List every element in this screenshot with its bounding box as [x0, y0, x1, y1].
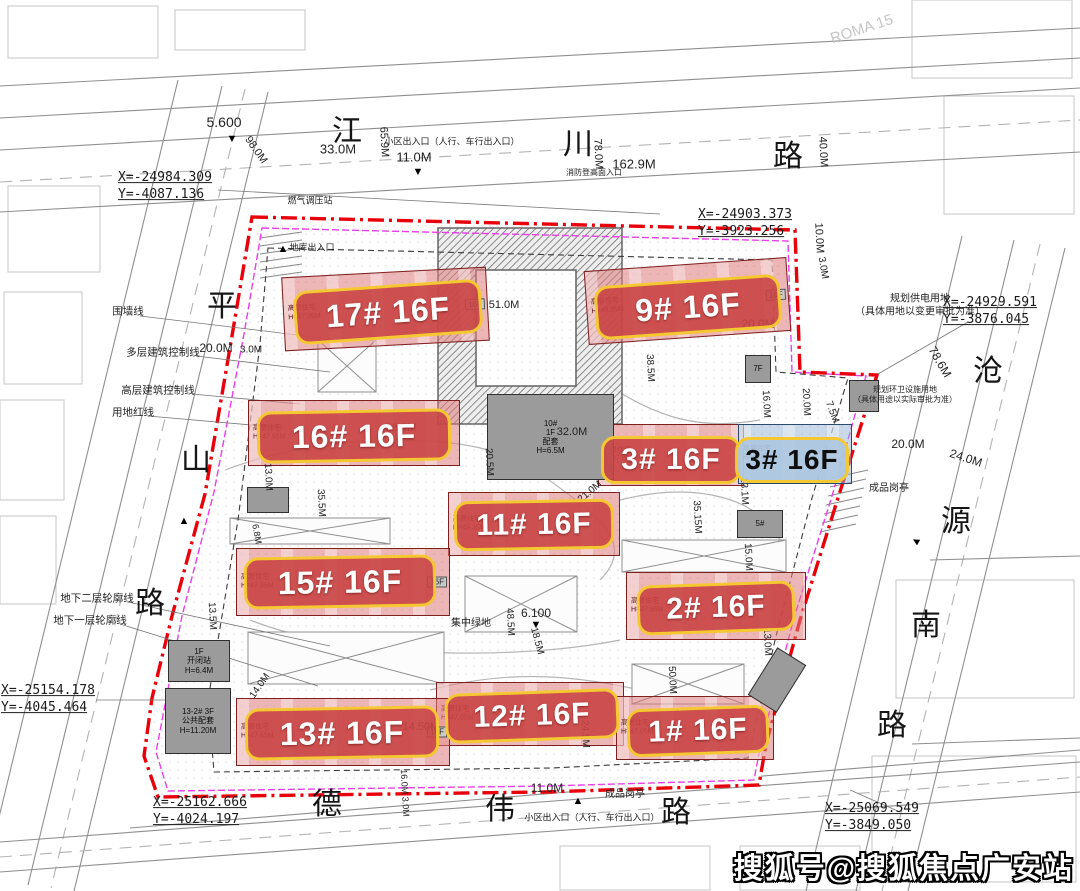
dimension-label: 13.5M — [206, 602, 218, 630]
dimension-label: 78.0M — [591, 138, 605, 169]
annotation-label: 消防登高面入口 — [566, 168, 622, 178]
coordinate-label: X=-25154.178Y=-4045.464 — [1, 683, 95, 717]
dimension-label: 6.100 — [521, 606, 551, 620]
road-name-char: 路 — [773, 131, 803, 175]
dimension-label: 13.0M — [761, 628, 773, 656]
dimension-label: 10.0M — [812, 222, 826, 253]
building-label-13: 13# 16F — [245, 705, 440, 760]
gray-building-4: 5# — [737, 510, 783, 538]
dimension-label: 20.0M — [891, 437, 924, 451]
annotation-label: 小区出入口（人行、车行出入口） — [384, 136, 519, 147]
legend-label: 用地红线 — [112, 405, 154, 420]
road-name-char: 南 — [911, 600, 941, 644]
annotation-label: 集中绿地 — [451, 618, 491, 631]
dimension-label: 40.0M — [816, 136, 830, 167]
dimension-label: 38.5M — [644, 354, 656, 382]
road-name-char: 伟 — [485, 784, 515, 828]
dimension-label: 11.0M — [531, 781, 563, 795]
road-name-char: 路 — [877, 700, 907, 744]
annotation-label: 地库出入口 — [289, 242, 334, 253]
annotation-label: 燃气调压站 — [287, 195, 332, 206]
dimension-label: 33.0M — [320, 142, 356, 157]
annotation-label: 成品岗亭 — [869, 483, 909, 496]
building-label-12: 12# 16F — [444, 688, 620, 744]
building-label-2: 2# 16F — [636, 580, 796, 635]
dimension-label: 35.5M — [315, 489, 327, 517]
dimension-label: 48.5M — [504, 608, 516, 636]
dimension-label: 5.600 — [206, 114, 241, 130]
legend-label: 围墙线 — [112, 304, 144, 319]
dimension-label: 32.0M — [557, 426, 588, 438]
legend-label: 地下一层轮廓线 — [53, 613, 127, 628]
road-name-char: 山 — [181, 435, 211, 479]
entrance-marker: ▼ — [531, 619, 542, 631]
dimension-label: 3.0M — [240, 345, 262, 356]
building-label-3b: 3# 16F — [735, 437, 849, 483]
dimension-label: 51.0M — [489, 299, 520, 311]
annotation-label: 成品岗亭 — [605, 789, 645, 802]
gray-building-1: 1F开闭站H=6.4M — [168, 640, 230, 682]
site-plan: 搜狐号@搜狐焦点广安站 高层住宅H=47.05M16F17# 16F高层住宅H=… — [0, 0, 1080, 891]
coordinate-label: X=-24929.591Y=-3876.045 — [943, 295, 1037, 329]
coordinate-label: X=-25162.666Y=-4024.197 — [153, 795, 247, 829]
road-name-char: 路 — [135, 578, 165, 622]
entrance-marker: ▼ — [227, 133, 238, 145]
entrance-marker: ▼ — [413, 166, 424, 178]
legend-label: 地下二层轮廓线 — [60, 591, 134, 606]
gray-building-6: 7F — [745, 355, 771, 383]
building-label-11: 11# 16F — [454, 499, 615, 552]
dimension-label: 16.0M — [760, 390, 772, 418]
dimension-label: 15.0M — [742, 543, 754, 571]
entrance-marker: ▲ — [278, 243, 289, 255]
legend-label: 多层建筑控制线 — [126, 345, 200, 360]
dimension-label: 50.0M — [666, 666, 678, 694]
coordinate-label: X=-25069.549Y=-3849.050 — [825, 801, 919, 835]
entrance-marker: ▲ — [179, 515, 190, 527]
gray-building-0: 10#1F配套H=6.5M — [487, 394, 614, 480]
coordinate-label: X=-24984.309Y=-4087.136 — [118, 170, 212, 204]
dimension-label: 20.0M — [199, 341, 232, 355]
gray-building-2: 13-2# 3F公共配套H=11.20M — [165, 688, 231, 754]
annotation-label: 小区出入口（人行、车行出入口） — [524, 812, 659, 823]
dimension-label: 20.0M — [800, 388, 812, 416]
building-label-3: 3# 16F — [601, 436, 741, 484]
building-label-16: 16# 16F — [257, 408, 452, 463]
building-label-15: 15# 16F — [244, 554, 437, 609]
road-name-char: 川 — [563, 119, 593, 163]
road-name-char: 德 — [312, 779, 342, 823]
entrance-marker: ▲ — [573, 795, 584, 807]
dimension-label: 20.5M — [483, 448, 495, 476]
watermark: 搜狐号@搜狐焦点广安站 — [734, 845, 1074, 887]
road-name-char: 源 — [941, 496, 971, 540]
coordinate-label: X=-24903.373Y=-3923.256 — [698, 207, 792, 241]
dimension-label: 11.0M — [396, 150, 431, 165]
road-name-char: 路 — [661, 787, 691, 831]
road-name-char: 沧 — [973, 346, 1003, 390]
dimension-label: 35.15M — [691, 500, 704, 534]
building-label-1: 1# 16F — [626, 705, 770, 758]
legend-label: 高层建筑控制线 — [121, 383, 195, 398]
road-name-char: 平 — [207, 281, 237, 325]
dimension-label: 13.0M — [262, 463, 274, 491]
annotation-label: 规划环卫设施用地（具体用途以实际审批为准） — [853, 385, 957, 405]
